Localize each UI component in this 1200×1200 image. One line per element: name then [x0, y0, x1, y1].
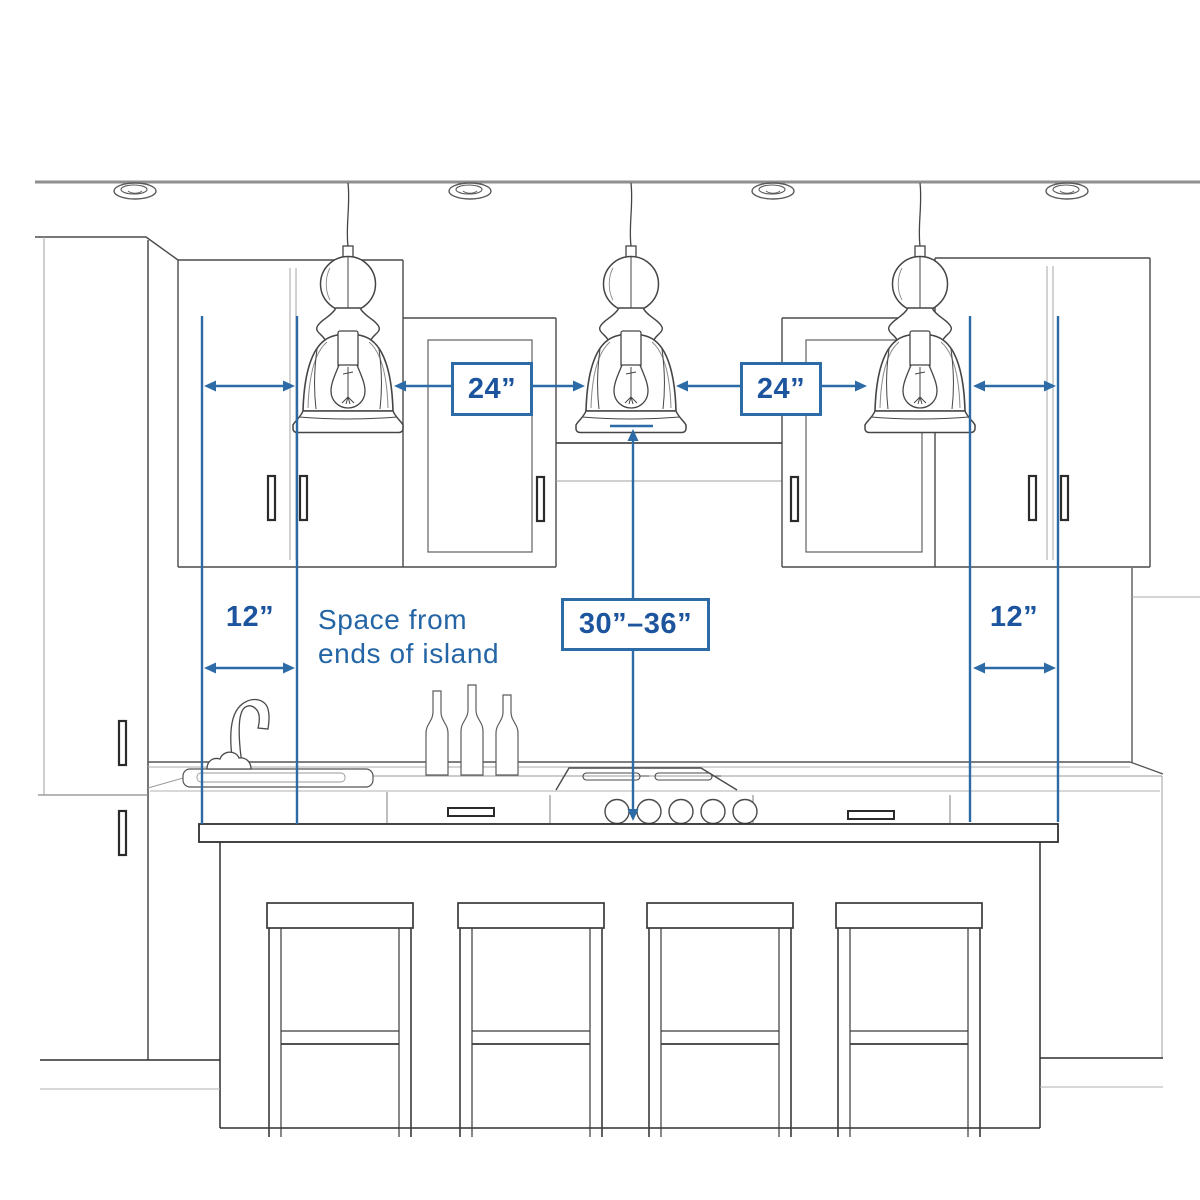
recessed-light-icon — [752, 183, 794, 199]
pendant-light — [293, 183, 403, 433]
cabinet-handle — [119, 811, 126, 855]
counter-area — [38, 685, 1163, 1058]
faucet — [207, 700, 269, 769]
recessed-light-icon — [114, 183, 156, 199]
sink — [183, 769, 373, 787]
pendant-light — [865, 183, 975, 433]
cooktop-knobs — [605, 800, 757, 824]
kitchen-pendant-spacing-diagram: 24” 24” 30”–36” 12” 12” Space from ends … — [0, 0, 1200, 1200]
ceiling — [35, 182, 1200, 199]
drawer-handle — [848, 811, 894, 819]
pendant-light — [576, 183, 686, 433]
cabinet-handle — [1029, 476, 1036, 520]
cabinet-handle — [268, 476, 275, 520]
range-hood — [556, 443, 782, 481]
island-countertop — [199, 824, 1058, 842]
recessed-light-icon — [449, 183, 491, 199]
drawer-handle — [448, 808, 494, 816]
cabinet-handle — [537, 477, 544, 521]
cabinet-handle — [791, 477, 798, 521]
bottles — [426, 685, 518, 775]
cabinet-handle — [119, 721, 126, 765]
bar-stools — [267, 903, 982, 1137]
recessed-light-icon — [1046, 183, 1088, 199]
pendant-lights — [293, 183, 975, 433]
cooktop — [556, 768, 737, 790]
bar-stool — [267, 903, 413, 1137]
bar-stool — [458, 903, 604, 1137]
cabinet-handle — [300, 476, 307, 520]
kitchen-sketch — [0, 0, 1200, 1200]
bar-stool — [836, 903, 982, 1137]
bar-stool — [647, 903, 793, 1137]
cabinet-handle — [1061, 476, 1068, 520]
